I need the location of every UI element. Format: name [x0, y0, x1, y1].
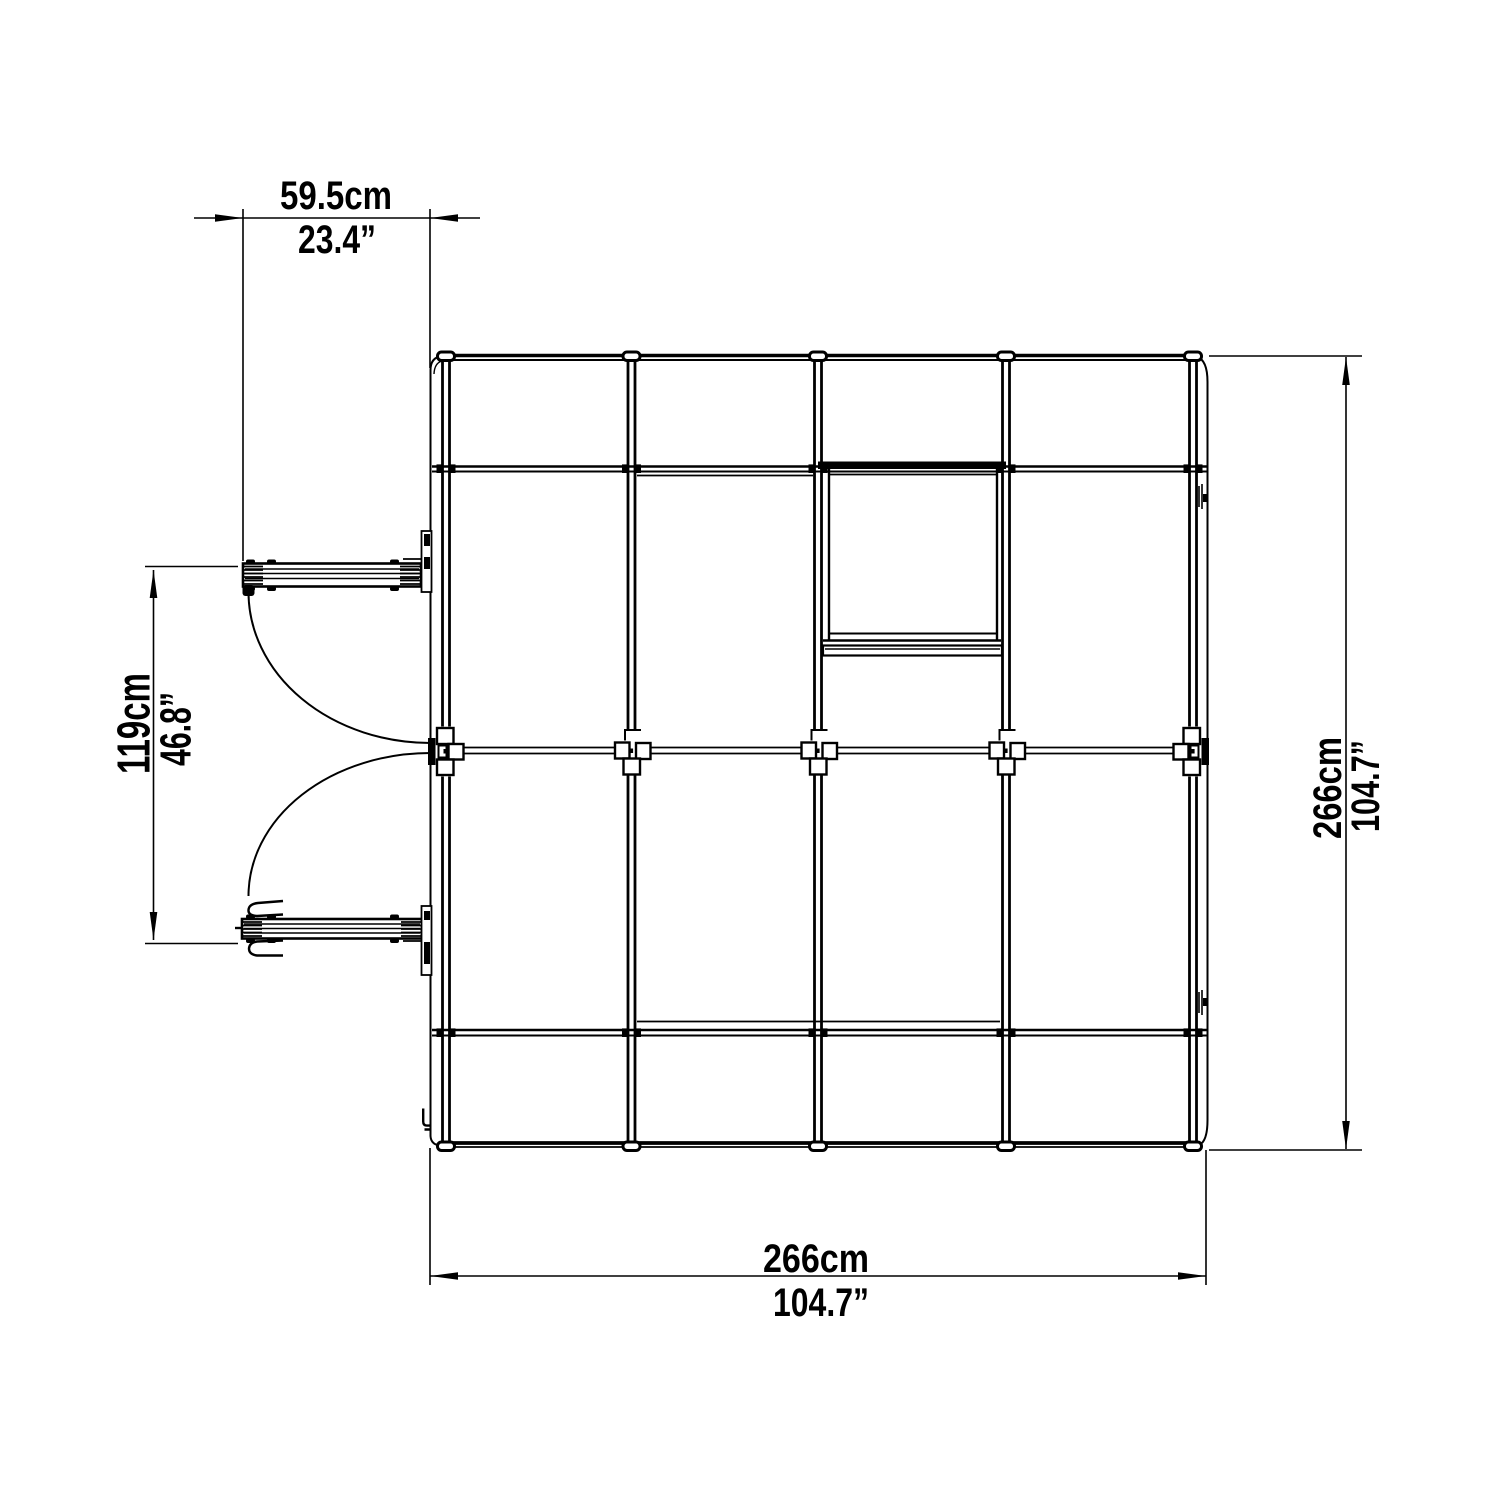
svg-text:23.4”: 23.4”	[298, 218, 376, 262]
svg-text:104.7”: 104.7”	[1344, 740, 1388, 832]
svg-text:59.5cm: 59.5cm	[280, 174, 392, 218]
svg-text:104.7”: 104.7”	[773, 1281, 869, 1325]
svg-text:46.8”: 46.8”	[152, 692, 201, 766]
svg-text:266cm: 266cm	[763, 1237, 869, 1281]
